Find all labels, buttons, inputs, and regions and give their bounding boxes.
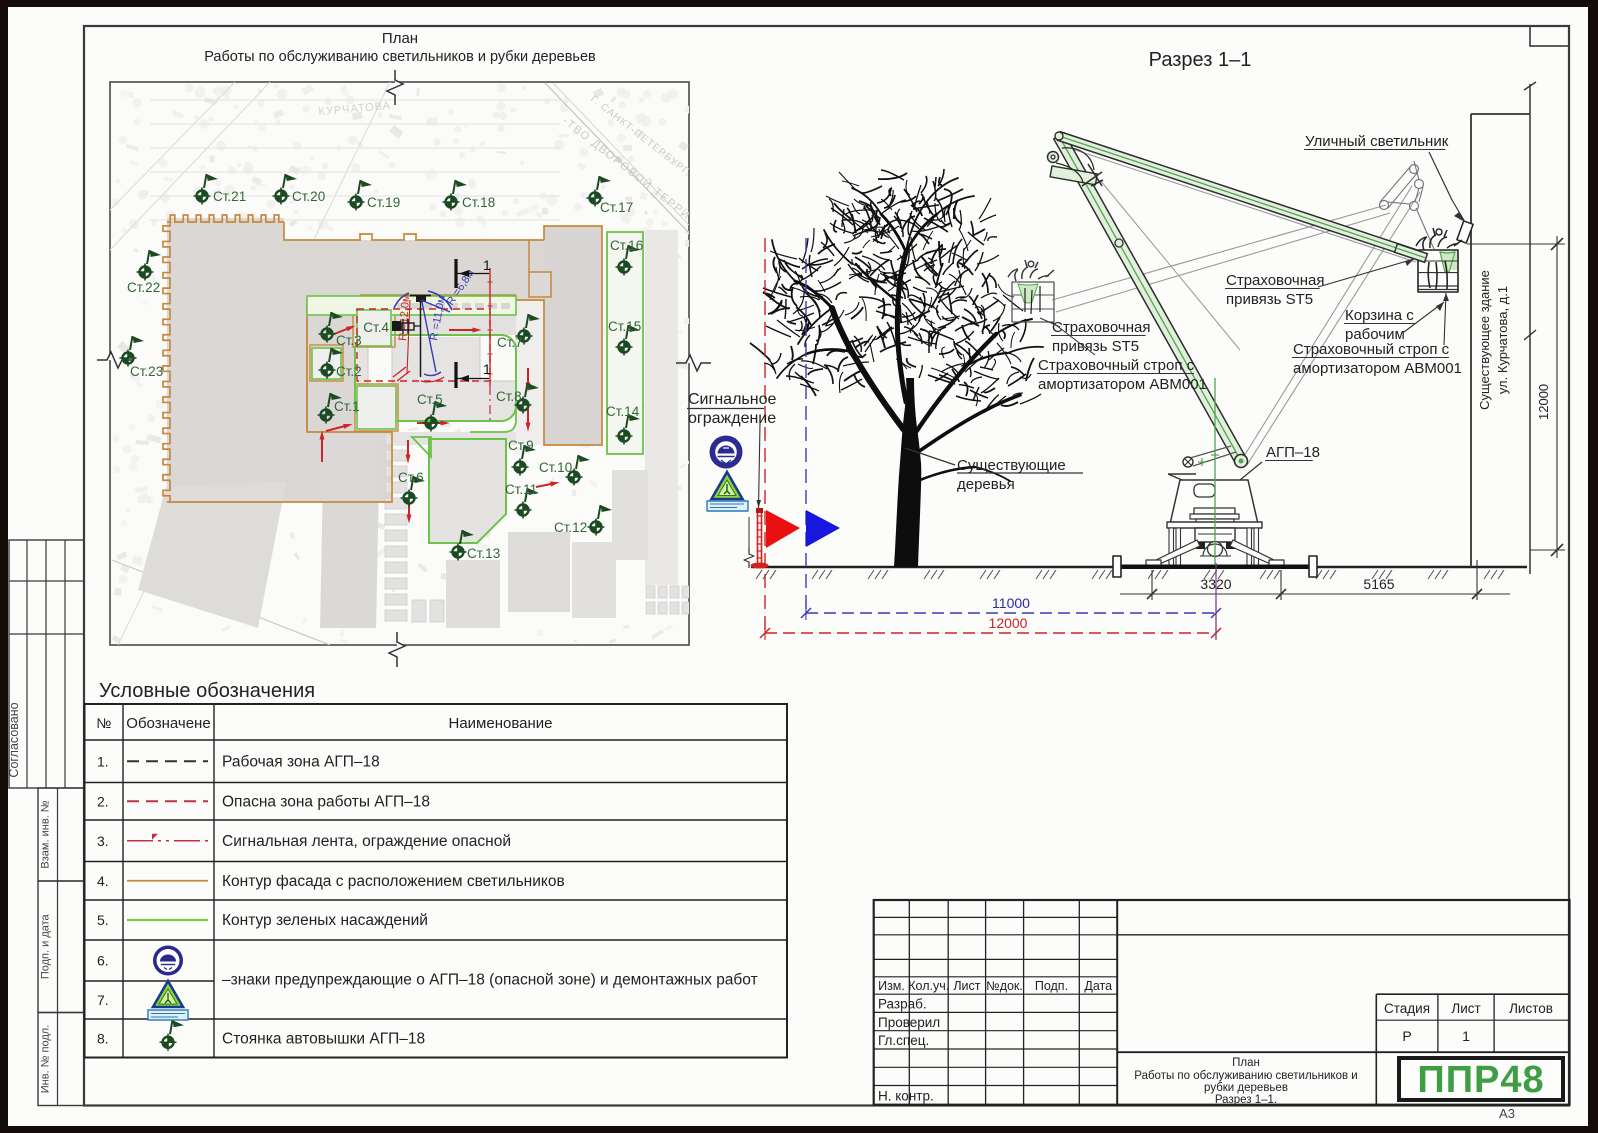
svg-text:Ст.15: Ст.15 <box>608 319 641 334</box>
svg-text:Ст.23: Ст.23 <box>130 364 163 379</box>
svg-text:Ст.3: Ст.3 <box>336 333 362 348</box>
svg-text:Ст.6: Ст.6 <box>398 470 424 485</box>
svg-text:12000: 12000 <box>1536 384 1551 420</box>
svg-text:Контур зеленых насаждений: Контур зеленых насаждений <box>222 912 428 929</box>
svg-text:Лист: Лист <box>953 979 980 993</box>
svg-text:5.: 5. <box>97 912 109 928</box>
svg-text:Ст.14: Ст.14 <box>606 404 640 419</box>
svg-text:Ст.8: Ст.8 <box>496 389 522 404</box>
svg-text:Гл.спец.: Гл.спец. <box>878 1033 929 1048</box>
svg-text:Разрез 1–1: Разрез 1–1 <box>1149 49 1252 71</box>
svg-text:Страховочная: Страховочная <box>1226 272 1324 289</box>
svg-text:Ст.9: Ст.9 <box>508 438 534 453</box>
svg-text:Ст.20: Ст.20 <box>292 189 325 204</box>
svg-text:Ст.5: Ст.5 <box>417 392 443 407</box>
svg-text:амортизатором АВМ001: амортизатором АВМ001 <box>1293 360 1462 377</box>
svg-text:11000: 11000 <box>992 595 1030 611</box>
svg-text:Кол.уч.: Кол.уч. <box>908 979 949 993</box>
svg-text:Дата: Дата <box>1084 979 1112 993</box>
svg-text:АГП–18: АГП–18 <box>1266 444 1320 461</box>
svg-text:Ст.13: Ст.13 <box>467 546 500 561</box>
svg-text:Ст.10: Ст.10 <box>539 460 572 475</box>
svg-text:Согласовано: Согласовано <box>7 702 21 777</box>
svg-text:№док.: №док. <box>986 979 1023 993</box>
svg-text:Ст.1: Ст.1 <box>334 399 360 414</box>
svg-text:7.: 7. <box>97 992 109 1008</box>
svg-text:Наименование: Наименование <box>449 715 553 732</box>
svg-text:Существующее здание: Существующее здание <box>1477 270 1492 410</box>
svg-text:Рабочая зона АГП–18: Рабочая зона АГП–18 <box>222 753 380 770</box>
svg-text:Ст.19: Ст.19 <box>367 195 400 210</box>
svg-text:Стоянка автовышки АГП–18: Стоянка автовышки АГП–18 <box>222 1030 425 1047</box>
svg-text:Разрез 1–1.: Разрез 1–1. <box>1215 1094 1277 1106</box>
svg-text:Ст.18: Ст.18 <box>462 195 495 210</box>
svg-text:Существующие: Существующие <box>957 457 1066 474</box>
svg-text:1: 1 <box>483 257 491 273</box>
svg-text:ограждение: ограждение <box>688 410 776 427</box>
svg-text:Подп.: Подп. <box>1035 979 1068 993</box>
svg-text:8.: 8. <box>97 1030 109 1046</box>
svg-text:Ст.11: Ст.11 <box>505 482 537 497</box>
svg-text:Стадия: Стадия <box>1384 1001 1430 1016</box>
svg-text:Условные обозначения: Условные обозначения <box>99 680 315 702</box>
svg-text:Ст.7: Ст.7 <box>497 335 523 350</box>
svg-text:Опасна зона работы АГП–18: Опасна зона работы АГП–18 <box>222 793 430 810</box>
svg-text:Подп. и дата: Подп. и дата <box>40 913 52 979</box>
svg-text:4.: 4. <box>97 873 109 889</box>
svg-text:Инв. № подл.: Инв. № подл. <box>40 1025 52 1094</box>
svg-text:Корзина с: Корзина с <box>1345 307 1414 324</box>
svg-text:А3: А3 <box>1499 1106 1515 1121</box>
svg-text:Уличный светильник: Уличный светильник <box>1305 133 1449 150</box>
svg-text:Страховочный строп с: Страховочный строп с <box>1038 357 1195 374</box>
svg-text:Контур фасада с расположением: Контур фасада с расположением светильник… <box>222 873 565 890</box>
svg-text:№: № <box>96 715 111 731</box>
svg-text:Разраб.: Разраб. <box>878 997 927 1012</box>
svg-text:План: План <box>1232 1057 1260 1069</box>
svg-text:Ст.12: Ст.12 <box>554 520 587 535</box>
svg-text:привязь ST5: привязь ST5 <box>1052 338 1139 355</box>
svg-text:Взам. инв. №: Взам. инв. № <box>40 800 52 868</box>
svg-text:5165: 5165 <box>1363 576 1394 592</box>
svg-text:Страховочный строп с: Страховочный строп с <box>1293 341 1450 358</box>
svg-text:привязь ST5: привязь ST5 <box>1226 291 1313 308</box>
svg-text:Ст.21: Ст.21 <box>213 189 246 204</box>
svg-text:рубки деревьев: рубки деревьев <box>1204 1082 1288 1094</box>
svg-text:ППР48: ППР48 <box>1417 1059 1544 1101</box>
svg-text:Ст.2: Ст.2 <box>336 364 362 379</box>
svg-text:деревья: деревья <box>957 476 1015 493</box>
svg-text:Ст.4: Ст.4 <box>363 320 389 335</box>
svg-text:6.: 6. <box>97 953 109 969</box>
svg-text:Изм.: Изм. <box>878 979 905 993</box>
svg-text:Обозначене: Обозначене <box>126 715 210 732</box>
svg-text:ул. Курчатова, д.1: ул. Курчатова, д.1 <box>1495 286 1510 394</box>
svg-text:Лист: Лист <box>1451 1001 1480 1016</box>
svg-text:амортизатором АВМ001: амортизатором АВМ001 <box>1038 376 1207 393</box>
svg-text:3.: 3. <box>97 833 109 849</box>
svg-text:Н. контр.: Н. контр. <box>878 1089 934 1104</box>
svg-text:Сигнальная лента, ограждение о: Сигнальная лента, ограждение опасной <box>222 833 511 850</box>
svg-text:1: 1 <box>1462 1028 1470 1044</box>
svg-text:Сигнальное: Сигнальное <box>688 391 776 408</box>
svg-text:Работы по обслуживанию светиль: Работы по обслуживанию светильников и <box>1134 1070 1357 1082</box>
svg-text:1.: 1. <box>97 753 109 769</box>
svg-text:12000: 12000 <box>989 615 1028 631</box>
svg-text:Ст.16: Ст.16 <box>610 238 643 253</box>
svg-text:Р: Р <box>1402 1028 1411 1044</box>
svg-text:Ст.17: Ст.17 <box>600 200 633 215</box>
svg-text:План: План <box>382 30 418 47</box>
svg-text:Работы по обслуживанию светиль: Работы по обслуживанию светильников и ру… <box>204 49 596 65</box>
svg-text:1: 1 <box>483 361 491 377</box>
svg-text:2.: 2. <box>97 793 109 809</box>
svg-text:Ст.22: Ст.22 <box>127 280 160 295</box>
svg-text:–знаки предупреждающие о АГП–1: –знаки предупреждающие о АГП–18 (опасной… <box>222 972 758 989</box>
svg-text:Листов: Листов <box>1509 1001 1553 1016</box>
svg-text:Проверил: Проверил <box>878 1015 940 1030</box>
